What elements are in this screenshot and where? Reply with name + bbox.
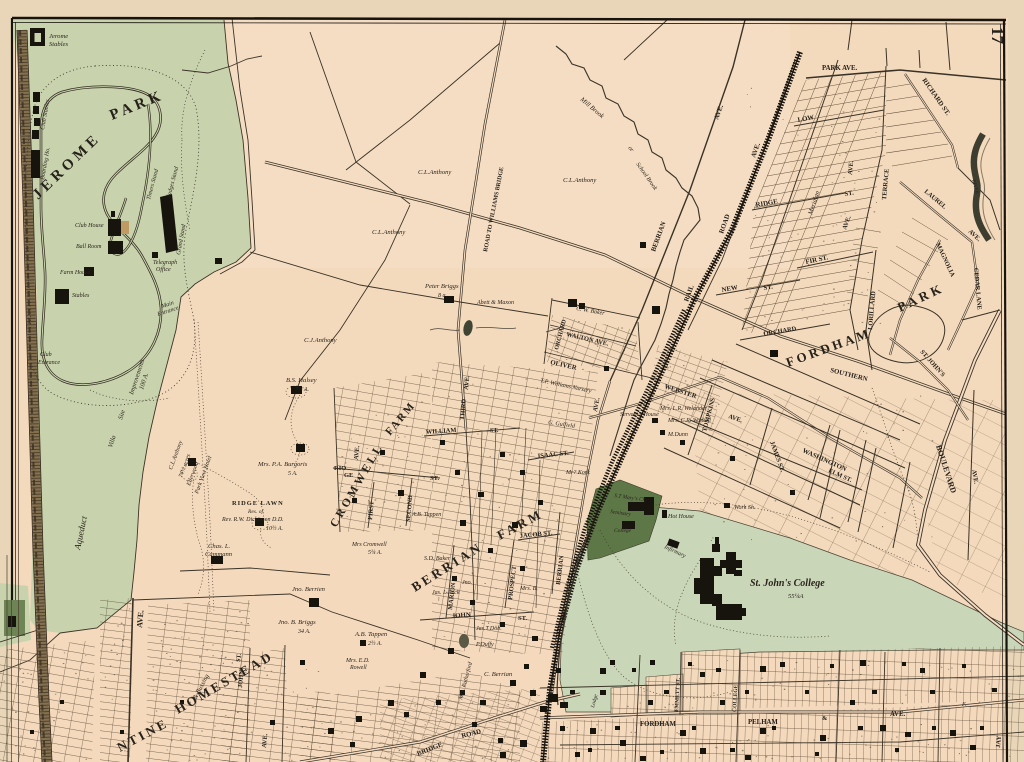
svg-text:10½ A.: 10½ A. xyxy=(266,525,283,532)
svg-text:PARK AVE.: PARK AVE. xyxy=(822,65,858,72)
svg-text:5¼ A.: 5¼ A. xyxy=(368,550,382,556)
svg-text:F.: F. xyxy=(961,702,966,708)
svg-text:Stables: Stables xyxy=(49,41,68,48)
svg-text:Abett & Maxon: Abett & Maxon xyxy=(476,300,514,306)
svg-text:AVE.: AVE. xyxy=(463,375,471,390)
svg-text:8 a.: 8 a. xyxy=(438,293,447,299)
svg-text:Stables: Stables xyxy=(72,293,90,299)
svg-text:C.L.Anthony: C.L.Anthony xyxy=(372,229,405,236)
svg-text:Rowell: Rowell xyxy=(349,665,367,671)
svg-text:55¼A: 55¼A xyxy=(788,593,805,600)
svg-text:FORDHAM: FORDHAM xyxy=(640,721,676,728)
svg-text:RIDGE LAWN: RIDGE LAWN xyxy=(232,500,284,507)
svg-text:Jas.T.Dob.: Jas.T.Dob. xyxy=(476,626,502,632)
svg-text:Mrs. P.A. Burgoris: Mrs. P.A. Burgoris xyxy=(257,461,308,468)
svg-text:Farm House: Farm House xyxy=(59,270,91,276)
svg-text:College: College xyxy=(614,528,632,534)
svg-text:Club House: Club House xyxy=(75,223,104,229)
svg-text:34 A.: 34 A. xyxy=(297,628,311,635)
svg-text:Mr? Kork: Mr? Kork xyxy=(565,470,590,476)
svg-text:ST.: ST. xyxy=(490,428,499,434)
svg-text:2½ A.: 2½ A. xyxy=(368,640,382,647)
svg-text:RIO: RIO xyxy=(334,465,346,472)
svg-text:Mrs. B.: Mrs. B. xyxy=(519,586,538,592)
svg-text:ST.: ST. xyxy=(236,653,243,662)
svg-text:AVE.: AVE. xyxy=(847,160,855,175)
svg-text:Club: Club xyxy=(40,352,52,358)
svg-text:C.L.Anthony: C.L.Anthony xyxy=(563,177,596,184)
svg-text:Mrs. E.D.: Mrs. E.D. xyxy=(345,658,370,664)
svg-text:JOHN: JOHN xyxy=(452,612,471,620)
svg-text:St. John's College: St. John's College xyxy=(750,578,825,589)
svg-text:B.S. Halsey: B.S. Halsey xyxy=(286,377,317,384)
svg-text:Servant's House: Servant's House xyxy=(620,412,659,418)
svg-text:Entrance: Entrance xyxy=(37,360,60,366)
svg-text:Chas. L.: Chas. L. xyxy=(208,543,231,550)
svg-text:P.Duffy: P.Duffy xyxy=(475,641,494,648)
svg-text:C.J.Anthony: C.J.Anthony xyxy=(304,337,337,344)
svg-text:17: 17 xyxy=(988,27,1007,45)
svg-text:ST.: ST. xyxy=(430,475,439,482)
svg-text:Work Sh.: Work Sh. xyxy=(734,505,755,511)
svg-text:&: & xyxy=(822,715,828,722)
svg-text:S.D. Baker: S.D. Baker xyxy=(424,556,451,562)
svg-text:Jno. B. Briggs: Jno. B. Briggs xyxy=(278,619,316,626)
svg-text:Res. of: Res. of xyxy=(247,508,264,515)
svg-text:AVE.: AVE. xyxy=(135,610,146,629)
svg-text:7½ A.: 7½ A. xyxy=(295,386,309,393)
svg-text:GE: GE xyxy=(344,472,353,479)
svg-text:Jno.: Jno. xyxy=(462,580,472,586)
svg-text:C.L.Anthony: C.L.Anthony xyxy=(418,169,451,176)
svg-text:PELHAM: PELHAM xyxy=(748,719,778,726)
svg-text:Ball Room: Ball Room xyxy=(76,244,102,250)
svg-text:AVE.: AVE. xyxy=(890,711,905,718)
svg-text:Jas. L.Peck: Jas. L.Peck xyxy=(432,590,460,596)
svg-text:M.Dunn: M.Dunn xyxy=(667,432,688,438)
svg-text:AVE.: AVE. xyxy=(353,445,361,460)
svg-text:AVE.: AVE. xyxy=(261,733,269,748)
svg-text:Cammann: Cammann xyxy=(205,551,233,558)
svg-text:5 A.: 5 A. xyxy=(288,471,298,477)
svg-text:A.B. Tappen: A.B. Tappen xyxy=(411,512,441,518)
svg-text:Mrs. C.R. Wantell: Mrs. C.R. Wantell xyxy=(667,418,711,424)
svg-text:Rev. R.W. Dickinson D.D.: Rev. R.W. Dickinson D.D. xyxy=(221,517,284,523)
svg-text:Mrs. L.R. Welander: Mrs. L.R. Welander xyxy=(659,406,708,412)
svg-text:Mrs Cromwell: Mrs Cromwell xyxy=(351,542,387,548)
svg-text:Office: Office xyxy=(156,266,171,273)
svg-text:C. Berrian: C. Berrian xyxy=(484,671,513,678)
svg-text:ST.: ST. xyxy=(518,615,527,622)
svg-text:JAY: JAY xyxy=(995,735,1003,748)
svg-text:A.B. Tappen: A.B. Tappen xyxy=(354,631,388,638)
svg-text:Peter Briggs: Peter Briggs xyxy=(424,283,459,290)
svg-text:Hot House: Hot House xyxy=(667,514,694,520)
svg-text:Jno. Berrien: Jno. Berrien xyxy=(292,586,326,593)
svg-text:Jerome: Jerome xyxy=(49,33,68,40)
svg-text:Telegraph: Telegraph xyxy=(153,260,177,266)
